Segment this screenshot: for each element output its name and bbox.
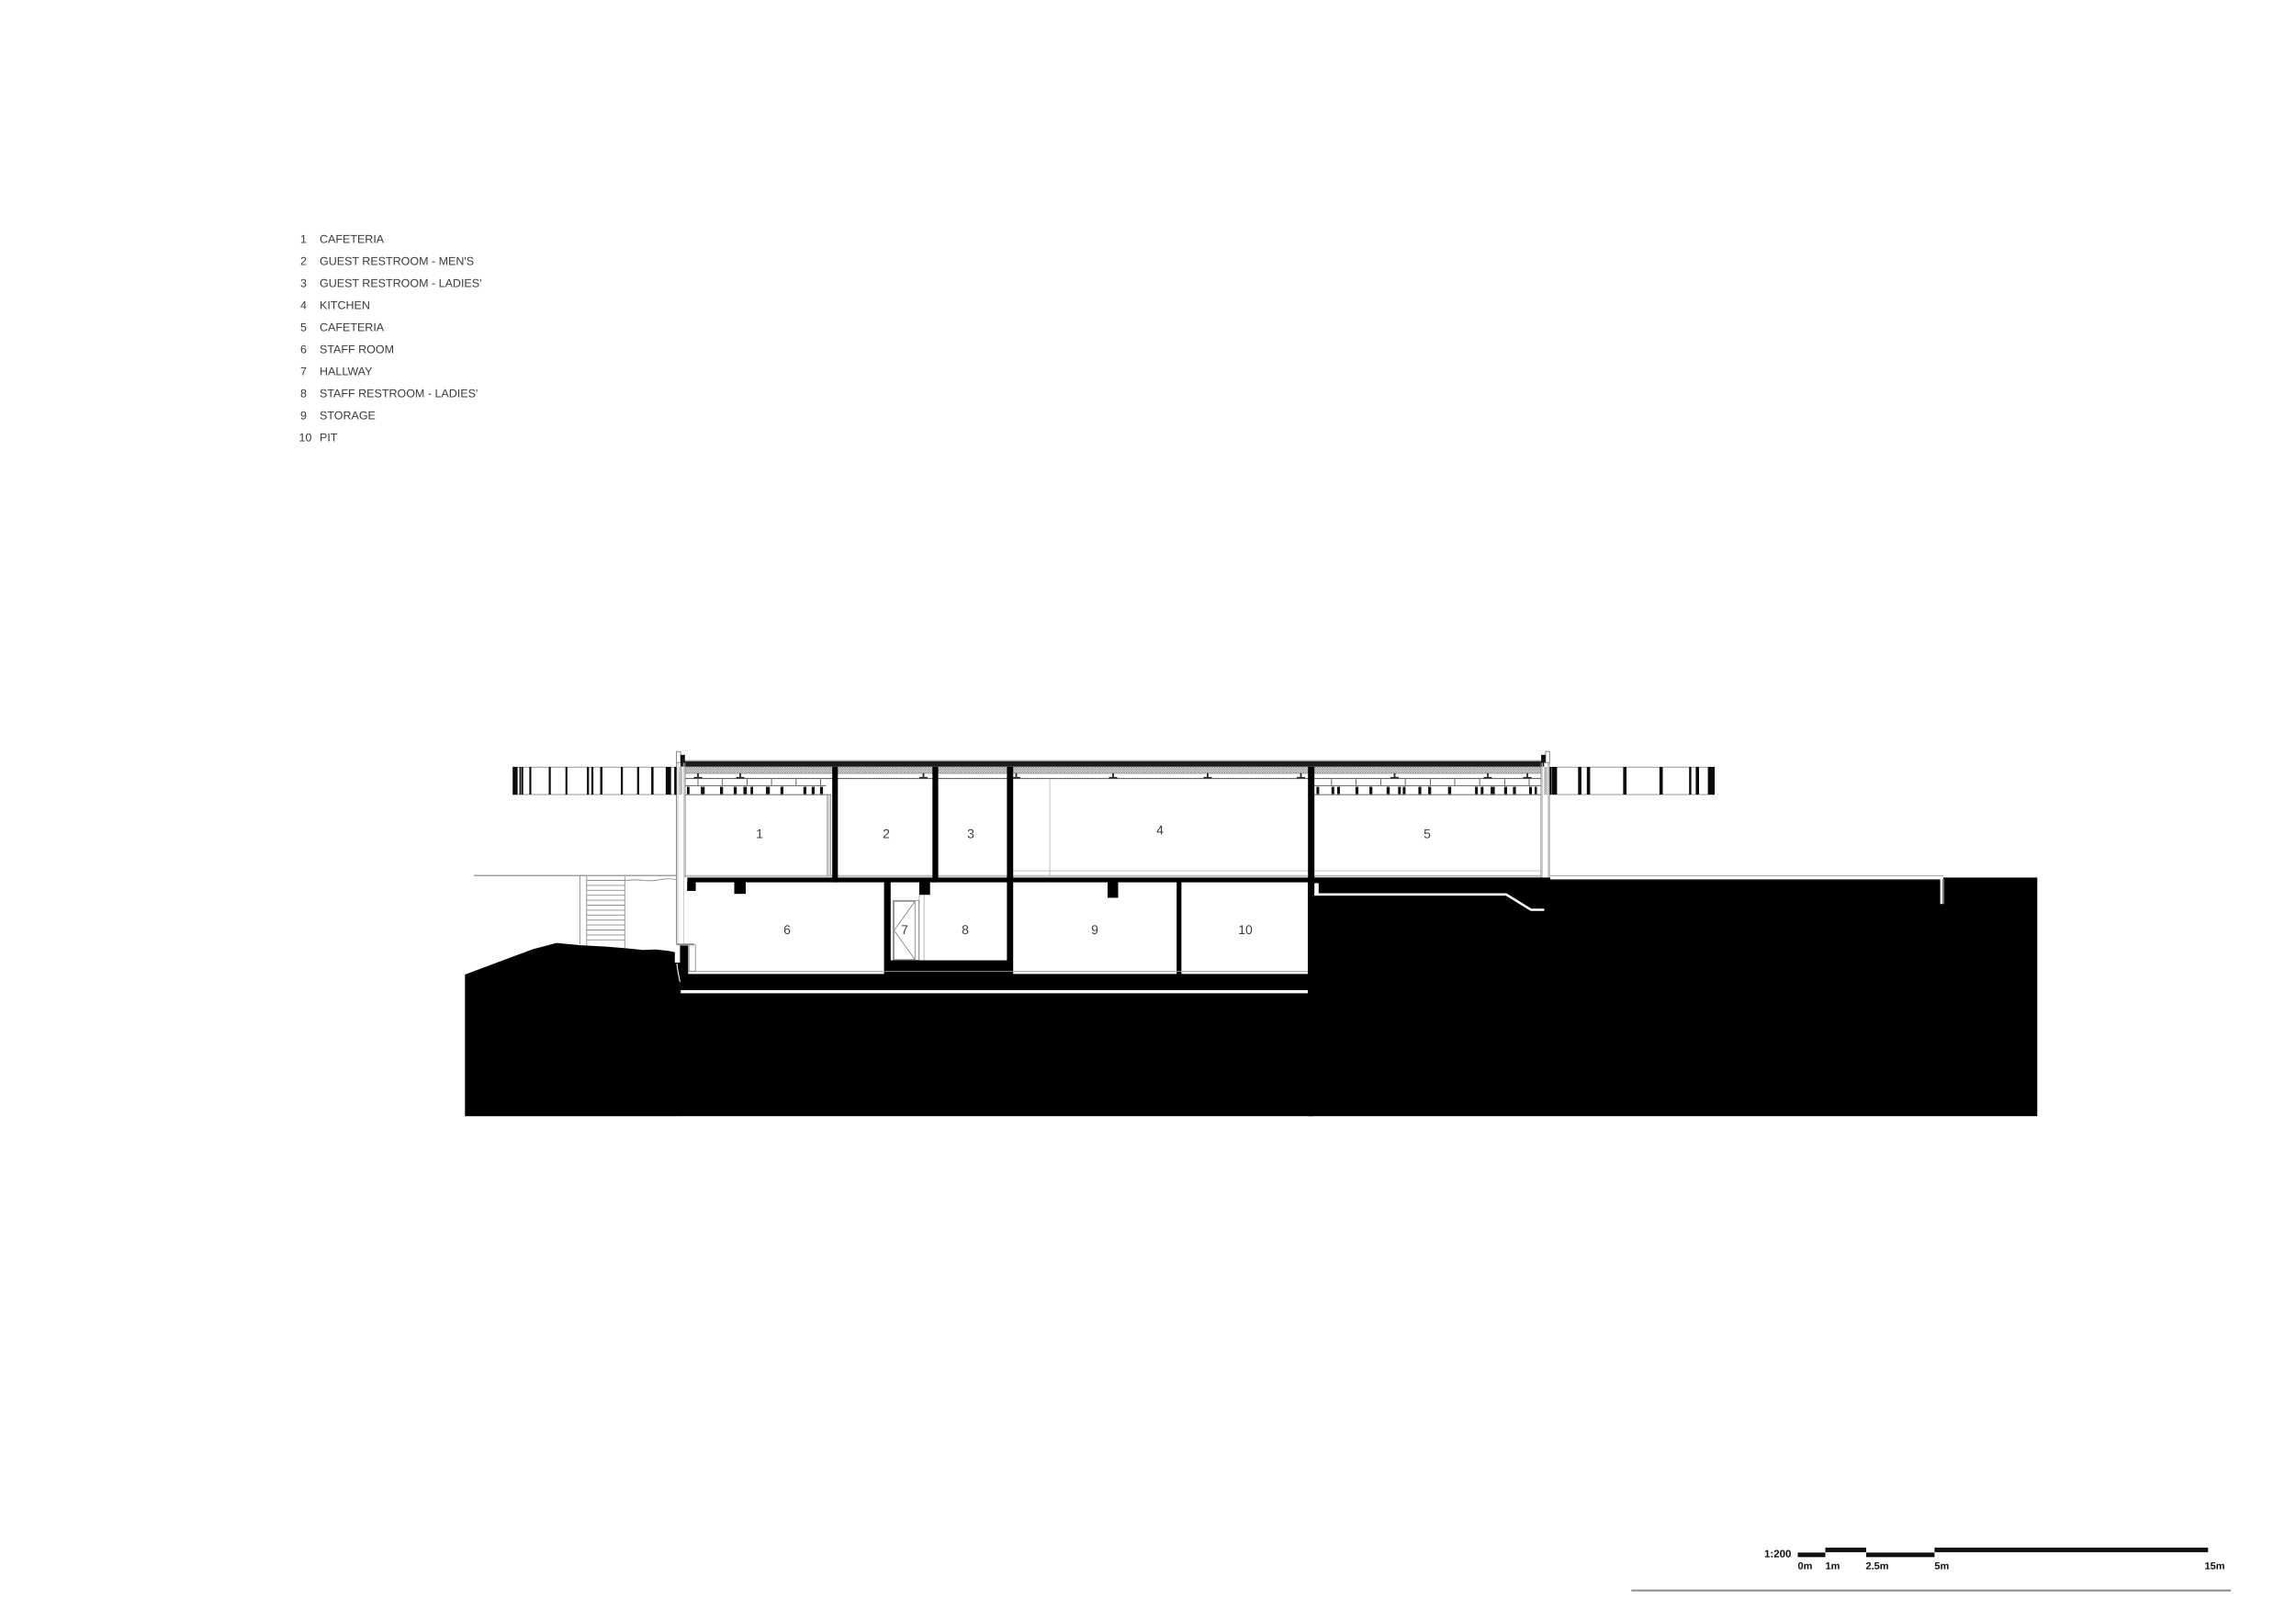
svg-text:10: 10	[1238, 922, 1253, 937]
svg-text:1: 1	[300, 233, 307, 246]
svg-text:3: 3	[300, 277, 307, 290]
svg-text:4: 4	[1156, 823, 1164, 838]
svg-text:9: 9	[300, 410, 307, 423]
svg-text:15m: 15m	[2204, 1561, 2224, 1572]
svg-text:1: 1	[756, 827, 763, 841]
svg-text:2: 2	[883, 827, 890, 841]
svg-text:8: 8	[300, 388, 307, 400]
svg-text:5: 5	[300, 321, 307, 334]
svg-text:HALLWAY: HALLWAY	[320, 366, 373, 378]
svg-text:9: 9	[1091, 922, 1098, 937]
svg-text:STAFF ROOM: STAFF ROOM	[320, 344, 394, 356]
svg-text:7: 7	[300, 366, 307, 378]
svg-text:5m: 5m	[1934, 1561, 1949, 1572]
svg-text:5: 5	[1424, 827, 1431, 841]
svg-text:2.5m: 2.5m	[1866, 1561, 1889, 1572]
svg-text:6: 6	[300, 344, 307, 356]
svg-text:GUEST RESTROOM - LADIES': GUEST RESTROOM - LADIES'	[320, 277, 482, 290]
svg-text:4: 4	[300, 299, 307, 312]
svg-text:GUEST RESTROOM - MEN'S: GUEST RESTROOM - MEN'S	[320, 255, 474, 268]
svg-text:1:200: 1:200	[1764, 1549, 1791, 1560]
svg-text:2: 2	[300, 255, 307, 268]
svg-text:CAFETERIA: CAFETERIA	[320, 233, 385, 246]
svg-text:8: 8	[962, 922, 969, 937]
svg-text:6: 6	[783, 922, 791, 937]
svg-text:PIT: PIT	[320, 432, 338, 445]
svg-text:3: 3	[967, 827, 974, 841]
svg-text:STAFF RESTROOM - LADIES': STAFF RESTROOM - LADIES'	[320, 388, 478, 400]
svg-text:STORAGE: STORAGE	[320, 410, 376, 423]
svg-text:0m: 0m	[1798, 1561, 1813, 1572]
svg-text:10: 10	[299, 432, 312, 445]
svg-text:1m: 1m	[1826, 1561, 1840, 1572]
svg-text:CAFETERIA: CAFETERIA	[320, 321, 385, 334]
svg-text:7: 7	[901, 922, 908, 937]
svg-text:KITCHEN: KITCHEN	[320, 299, 370, 312]
